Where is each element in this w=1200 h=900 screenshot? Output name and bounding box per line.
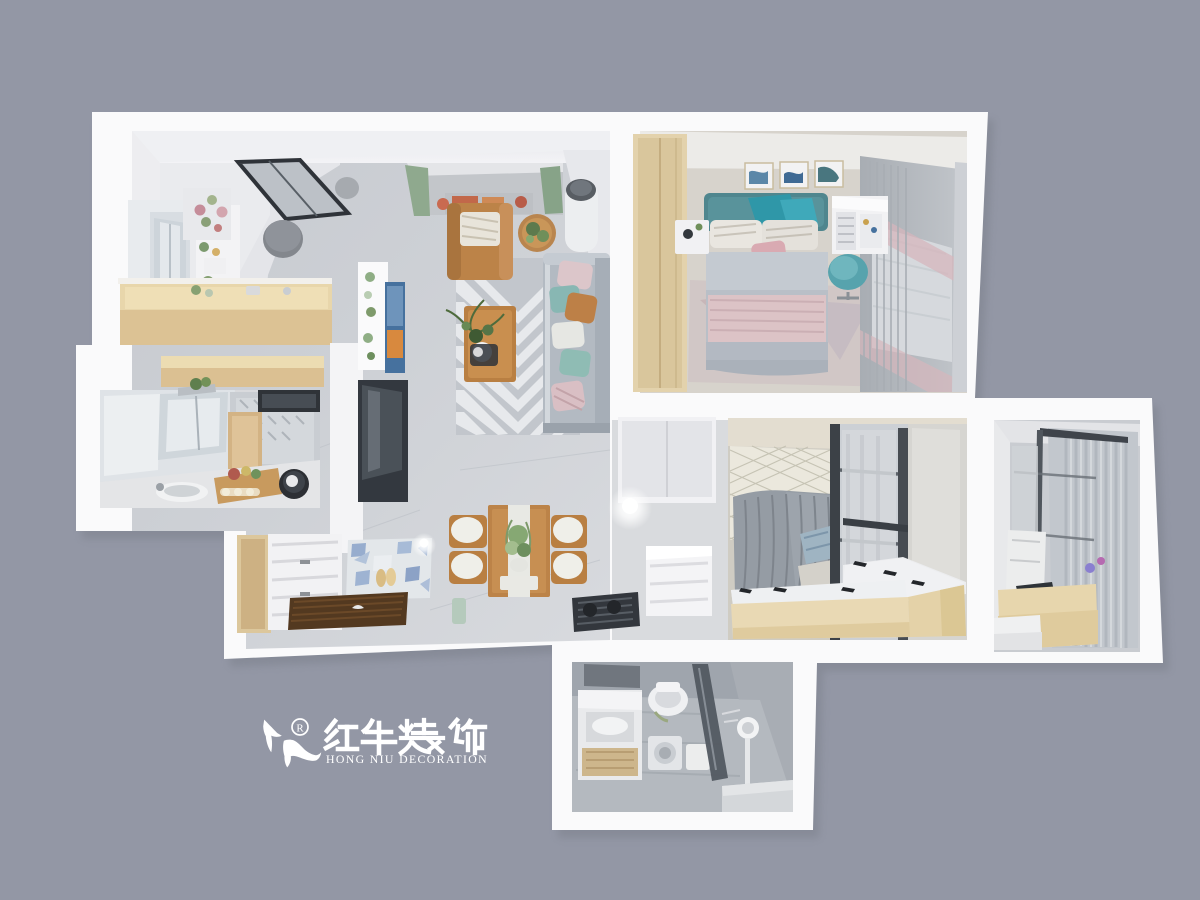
svg-text:HONG NIU DECORATION: HONG NIU DECORATION — [326, 752, 488, 766]
svg-text:R: R — [296, 723, 304, 735]
